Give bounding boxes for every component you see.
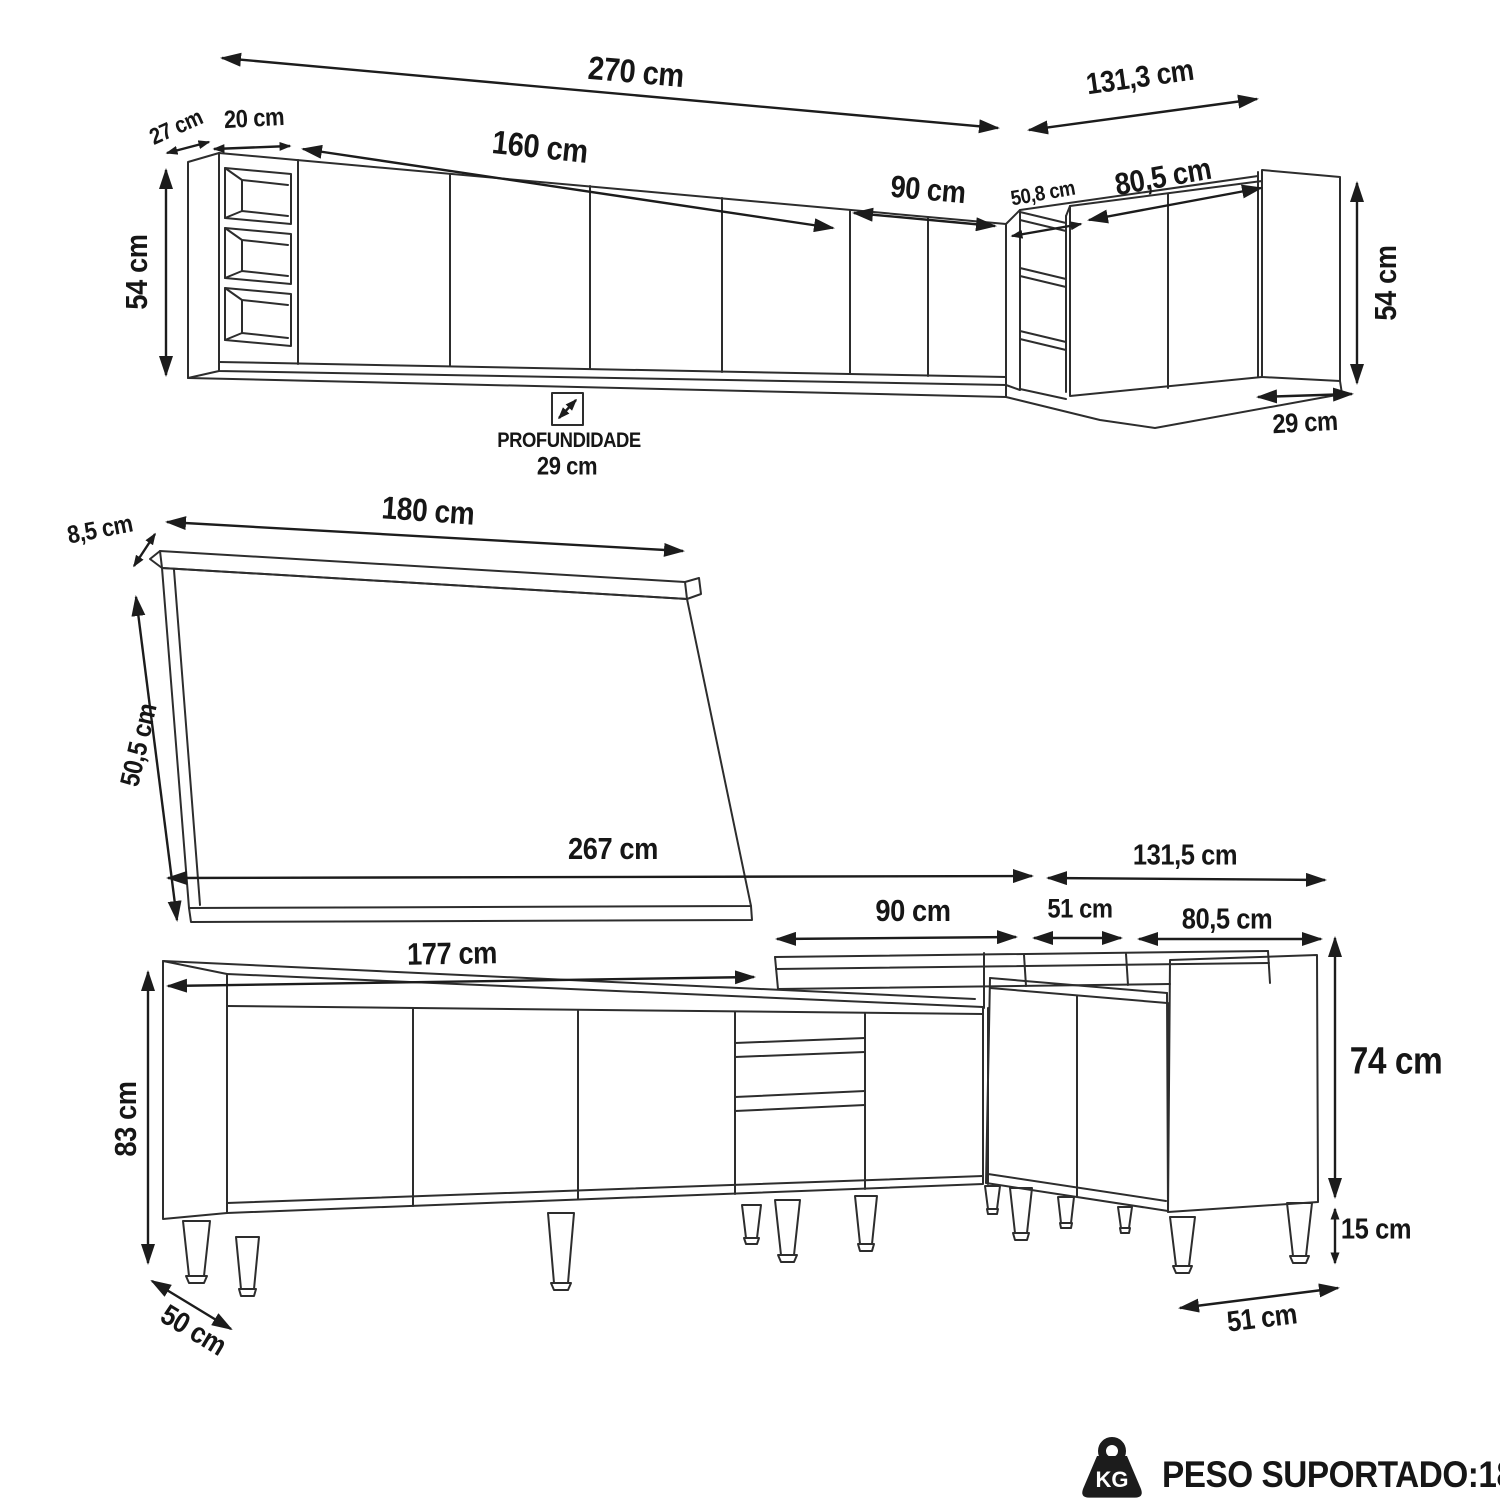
- depth-note-value: 29 cm: [537, 453, 597, 482]
- supported-weight-text: PESO SUPORTADO:180 KG: [1162, 1454, 1500, 1496]
- weight-icon-label: KG: [1096, 1467, 1129, 1492]
- dim-base-height: 83 cm: [108, 1081, 144, 1156]
- dim-counter-length: 180 cm: [380, 489, 475, 532]
- dim-upper-shelf-width: 20 cm: [223, 103, 285, 135]
- dim-base-corner-span: 90 cm: [875, 893, 950, 929]
- dim-base-left-run: 177 cm: [407, 935, 497, 973]
- dim-base-corner-side: 51 cm: [1047, 894, 1112, 925]
- countertop-drawing: [150, 551, 752, 922]
- dim-upper-height-left: 54 cm: [119, 234, 155, 309]
- dim-upper-corner-span: 90 cm: [889, 169, 967, 211]
- dim-upper-height-right: 54 cm: [1368, 245, 1404, 320]
- dim-base-leg-height: 15 cm: [1341, 1214, 1411, 1247]
- technical-drawing: [0, 0, 1500, 1500]
- base-cabinet-drawing: [163, 951, 1318, 1296]
- base-dimension-arrows: [148, 876, 1338, 1329]
- dim-base-total-width: 267 cm: [568, 831, 658, 867]
- weight-kg-icon: KG: [1072, 1436, 1152, 1500]
- kitchen-dimensions-diagram: 270 cm 131,3 cm 27 cm 20 cm 160 cm 90 cm…: [0, 0, 1500, 1500]
- cabinet-legs: [183, 1186, 1312, 1296]
- dim-upper-right-depth: 29 cm: [1272, 406, 1339, 440]
- upper-dimension-arrows: [166, 58, 1357, 397]
- dim-base-right-height: 74 cm: [1350, 1041, 1443, 1084]
- dim-base-right-run: 131,5 cm: [1133, 840, 1237, 873]
- depth-note-label: PROFUNDIDADE: [497, 429, 641, 453]
- depth-icon: [552, 393, 583, 425]
- upper-cabinet-drawing: [188, 153, 1342, 428]
- dim-base-right-doors: 80,5 cm: [1182, 904, 1273, 937]
